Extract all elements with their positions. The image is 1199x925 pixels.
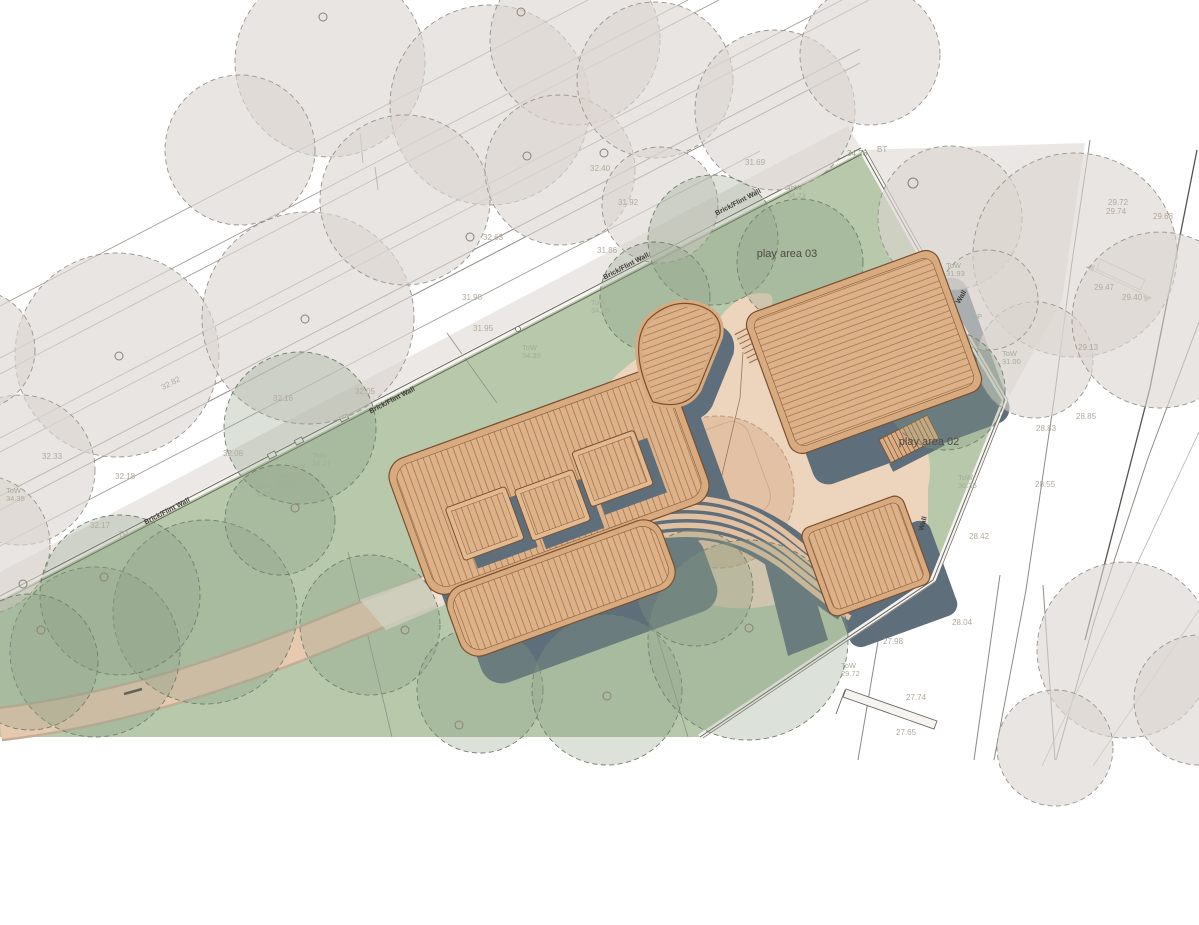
svg-text:29.72: 29.72: [841, 669, 860, 678]
spot-level: 27.98: [883, 637, 904, 646]
spot-level: 31.98: [462, 293, 483, 302]
spot-level: 27.65: [896, 728, 917, 737]
spot-level: 32.16: [273, 394, 294, 403]
svg-text:34.35: 34.35: [6, 494, 25, 503]
spot-level: 29.47: [1094, 283, 1115, 292]
spot-level: 31.86: [597, 246, 618, 255]
spot-level: 28.83: [1036, 424, 1057, 433]
spot-level: 27.74: [906, 693, 927, 702]
spot-level: 34.36: [847, 149, 868, 158]
svg-text:31.93: 31.93: [946, 269, 965, 278]
svg-text:35.08: 35.08: [290, 470, 309, 479]
spot-level: 32.63: [483, 233, 504, 242]
site-plan-page: play area 03 play area 02 Brick/Flint Wa…: [0, 0, 1199, 925]
spot-level: 29.72: [1108, 198, 1129, 207]
svg-text:35.43: 35.43: [276, 480, 295, 489]
site-plan-drawing: play area 03 play area 02 Brick/Flint Wa…: [0, 0, 1199, 925]
spot-level: 32.05: [355, 387, 376, 396]
spot-level: 32.18: [115, 472, 136, 481]
spot-level: 32.17: [90, 521, 111, 530]
spot-level: 28.55: [1035, 480, 1056, 489]
play-area-03-label: play area 03: [757, 248, 818, 260]
bt-marker: BT: [877, 145, 887, 154]
tp-marker: TP: [118, 530, 128, 539]
svg-text:31.00: 31.00: [1002, 357, 1021, 366]
spot-level: 29.74: [1106, 207, 1127, 216]
spot-level: 31.95: [473, 324, 494, 333]
spot-level: 28.42: [969, 532, 990, 541]
svg-text:34.27: 34.27: [312, 459, 331, 468]
spot-level: 32.40: [590, 164, 611, 173]
spot-level: 32.33: [42, 452, 63, 461]
svg-text:34.23: 34.23: [787, 191, 806, 200]
wall-post: [516, 327, 521, 332]
lp-marker: LP: [973, 312, 982, 321]
spot-level: 31.92: [618, 198, 639, 207]
svg-text:30.36: 30.36: [958, 481, 977, 490]
play-area-02-label: play area 02: [899, 436, 960, 448]
spot-level: 31.69: [745, 158, 766, 167]
spot-level: 32.08: [223, 449, 244, 458]
spot-level: 28.04: [952, 618, 973, 627]
svg-text:34.39: 34.39: [522, 351, 541, 360]
spot-level: 29.68: [1153, 212, 1174, 221]
spot-level: 28.85: [1076, 412, 1097, 421]
svg-text:34.26: 34.26: [255, 490, 274, 499]
spot-level: 29.13: [1078, 343, 1099, 352]
spot-level: 29.40: [1122, 293, 1143, 302]
svg-text:34.25: 34.25: [591, 306, 610, 315]
